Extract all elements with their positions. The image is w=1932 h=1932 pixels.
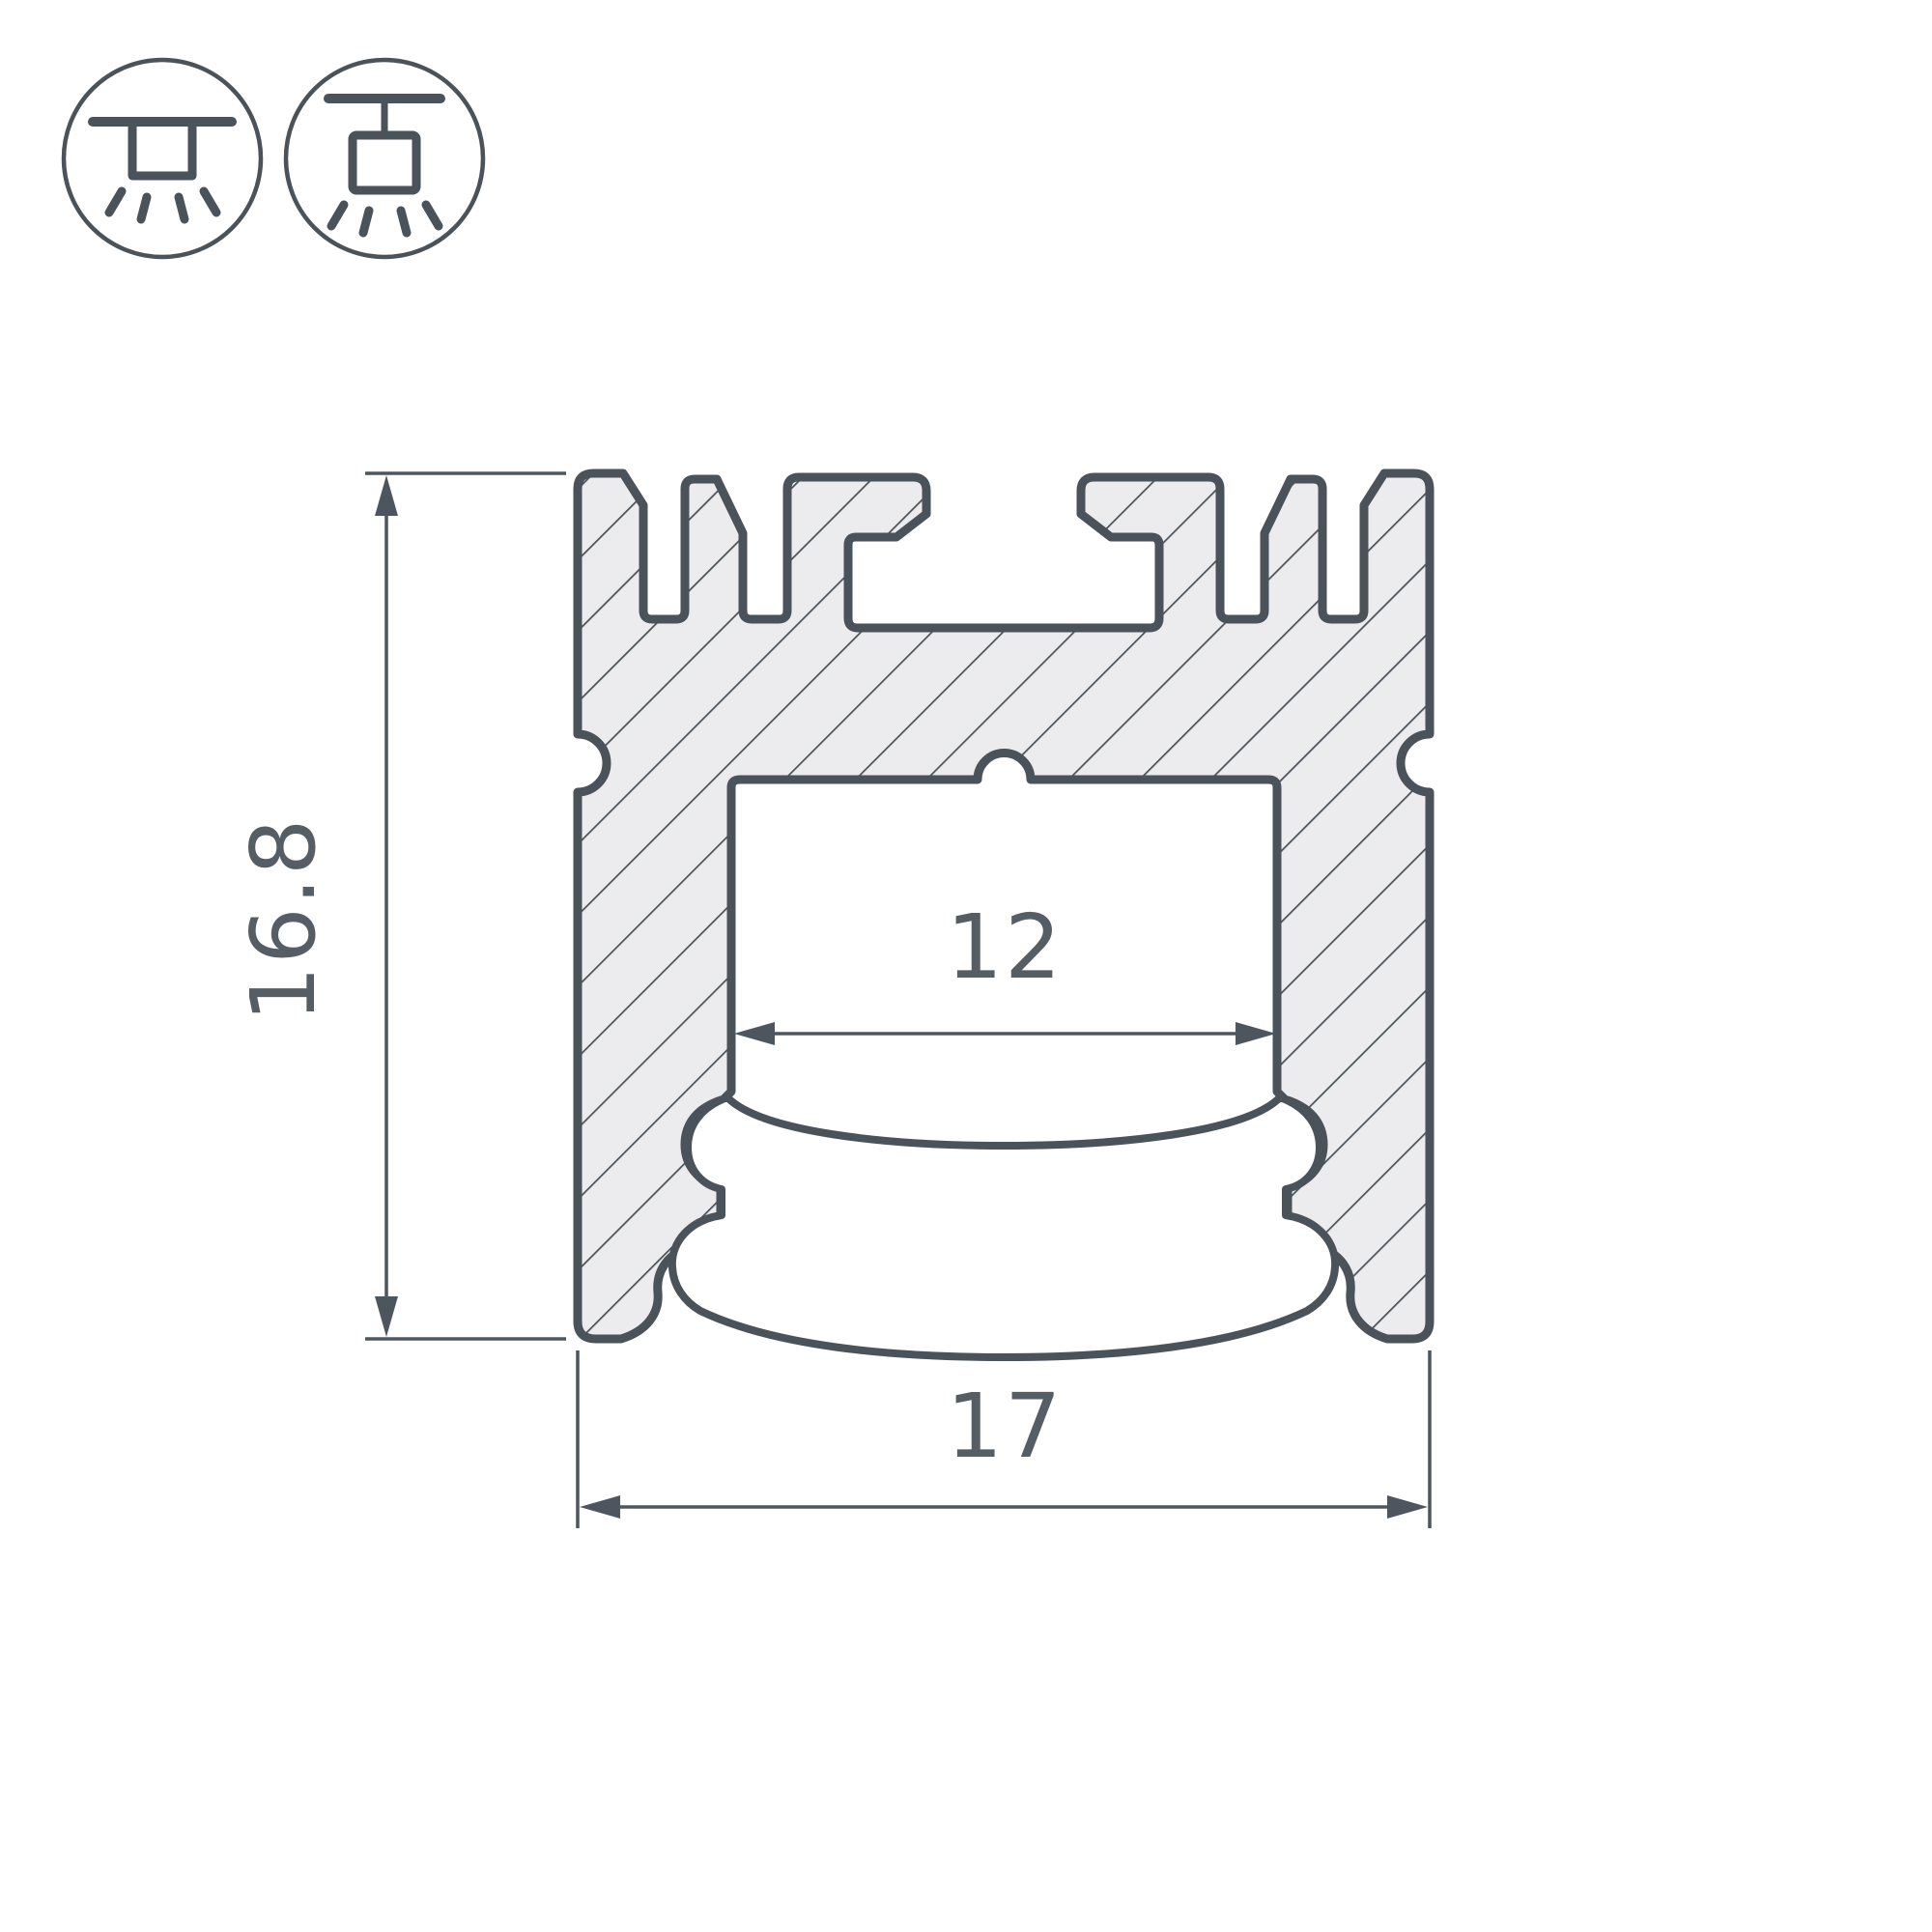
height-dimension-label: 16.8 <box>232 817 335 1023</box>
arrowhead-right <box>1236 1022 1276 1045</box>
arrowhead-left <box>580 1495 620 1519</box>
arrowhead-left <box>734 1022 775 1045</box>
dimension-height <box>365 473 566 1339</box>
arrowhead-down <box>375 1296 398 1337</box>
drawing-canvas: 16.8 12 17 <box>0 0 1932 1932</box>
arrowhead-up <box>375 475 398 516</box>
diffuser-cover <box>672 1097 1335 1357</box>
luminaire-body <box>353 135 416 190</box>
icon-circle <box>64 60 261 257</box>
light-rays <box>109 191 216 219</box>
icon-circle <box>286 60 483 257</box>
profile-section-drawing: 16.8 12 17 <box>0 0 1932 1932</box>
light-rays <box>331 205 439 233</box>
inner-width-dimension-label: 12 <box>946 895 1063 999</box>
dimension-inner-width <box>734 1022 1276 1045</box>
arrowhead-right <box>1387 1495 1428 1519</box>
outer-width-dimension-label: 17 <box>946 1375 1063 1478</box>
pendant-mount-icon <box>286 60 483 257</box>
luminaire-body <box>132 126 192 176</box>
surface-mount-icon <box>64 60 261 257</box>
